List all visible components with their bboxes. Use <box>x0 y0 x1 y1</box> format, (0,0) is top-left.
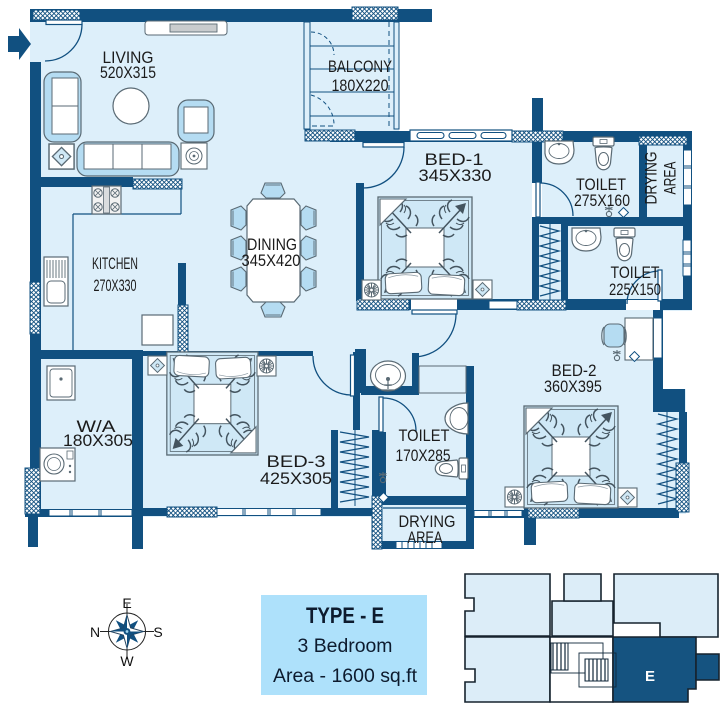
svg-text:270X330: 270X330 <box>94 276 137 295</box>
svg-text:360X395: 360X395 <box>544 377 602 396</box>
svg-text:E: E <box>645 668 655 685</box>
svg-text:345X420: 345X420 <box>242 251 301 270</box>
svg-text:N: N <box>90 624 100 640</box>
svg-text:170X285: 170X285 <box>396 446 451 465</box>
svg-text:AREA: AREA <box>408 528 443 547</box>
svg-text:AREA: AREA <box>660 161 679 194</box>
svg-text:520X315: 520X315 <box>100 63 156 82</box>
svg-text:E: E <box>122 595 131 611</box>
svg-text:KITCHEN: KITCHEN <box>92 254 138 273</box>
svg-text:225X150: 225X150 <box>609 280 661 299</box>
svg-text:180X220: 180X220 <box>332 76 389 95</box>
svg-text:275X160: 275X160 <box>574 191 630 210</box>
svg-text:TOILET: TOILET <box>399 426 450 445</box>
svg-text:BALCONY: BALCONY <box>328 57 392 76</box>
svg-text:W: W <box>120 653 134 669</box>
svg-text:425X305: 425X305 <box>260 469 332 488</box>
svg-text:180X305: 180X305 <box>63 431 133 450</box>
svg-text:Area - 1600 sq.ft: Area - 1600 sq.ft <box>273 666 418 687</box>
svg-text:3 Bedroom: 3 Bedroom <box>298 636 393 657</box>
svg-text:TYPE - E: TYPE - E <box>306 603 384 628</box>
svg-text:DRYING: DRYING <box>641 152 660 205</box>
svg-text:345X330: 345X330 <box>419 166 492 185</box>
svg-text:S: S <box>153 624 162 640</box>
